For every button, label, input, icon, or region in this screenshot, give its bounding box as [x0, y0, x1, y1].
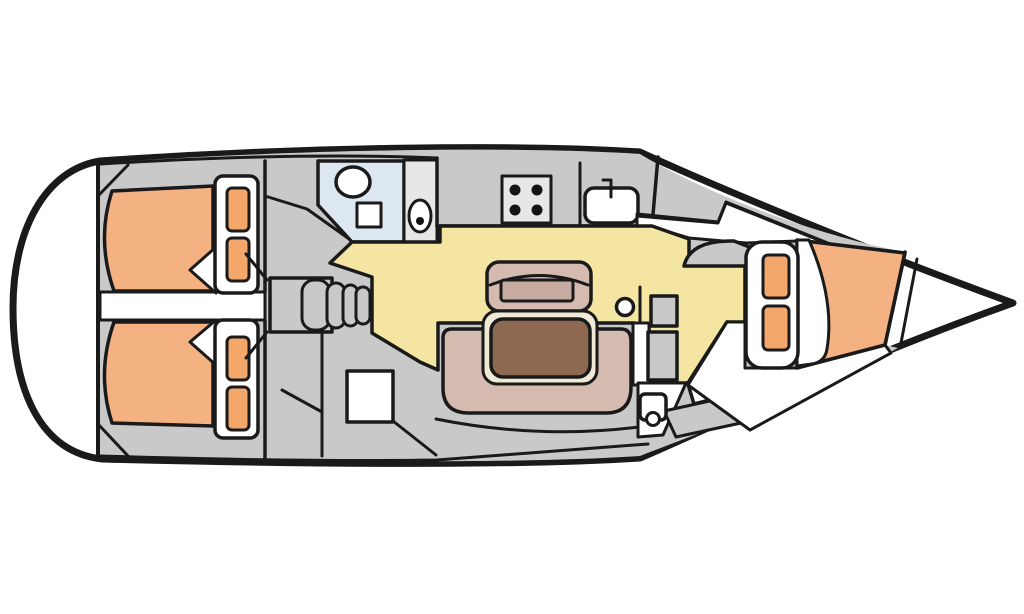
fwd-head-toilet-bowl: [647, 413, 660, 426]
settee-cushion: [501, 280, 573, 301]
forward-berth-pillow-2: [763, 306, 789, 350]
floor-plan-page: [0, 0, 1024, 614]
nav-table: [651, 296, 677, 326]
nav-seat: [648, 332, 677, 380]
companionway-step-4: [356, 287, 370, 324]
floor-plan-canvas: [0, 0, 1024, 614]
aft-cabin-starboard-pillow-2: [227, 387, 249, 430]
forward-berth-pillow-1: [763, 255, 789, 298]
galley-stove: [502, 176, 551, 223]
aft-head-sink-drain: [416, 217, 424, 225]
aft-head-toilet: [336, 167, 370, 197]
wet-locker-door: [347, 371, 393, 422]
mast-post: [617, 299, 634, 316]
aft-head-sink: [409, 200, 431, 232]
aft-head-shower-seat: [357, 203, 381, 227]
saloon-table: [491, 319, 590, 377]
stove-burner-1: [510, 185, 521, 196]
engine-compartment: [100, 292, 265, 320]
aft-cabin-port-pillow-1: [227, 188, 249, 231]
aft-cabin-port-pillow-2: [227, 238, 249, 281]
stove-burner-3: [510, 205, 521, 216]
stove-burner-4: [532, 205, 543, 216]
stove-burner-2: [532, 185, 543, 196]
